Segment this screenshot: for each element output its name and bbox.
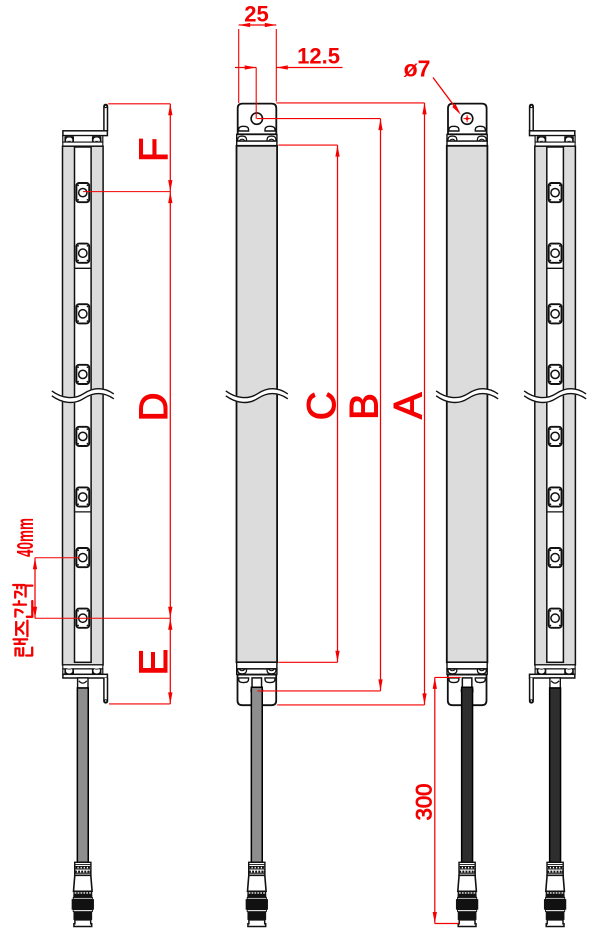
svg-text:40mm: 40mm [12,518,38,557]
svg-text:25: 25 [244,1,268,26]
svg-text:E: E [132,649,176,676]
svg-text:12.5: 12.5 [297,44,340,69]
svg-text:B: B [342,393,386,420]
svg-text:A: A [386,392,430,419]
svg-text:ø7: ø7 [404,55,431,81]
svg-text:C: C [300,391,344,420]
svg-text:300: 300 [412,784,437,821]
svg-text:D: D [132,392,176,421]
svg-text:F: F [132,138,176,162]
